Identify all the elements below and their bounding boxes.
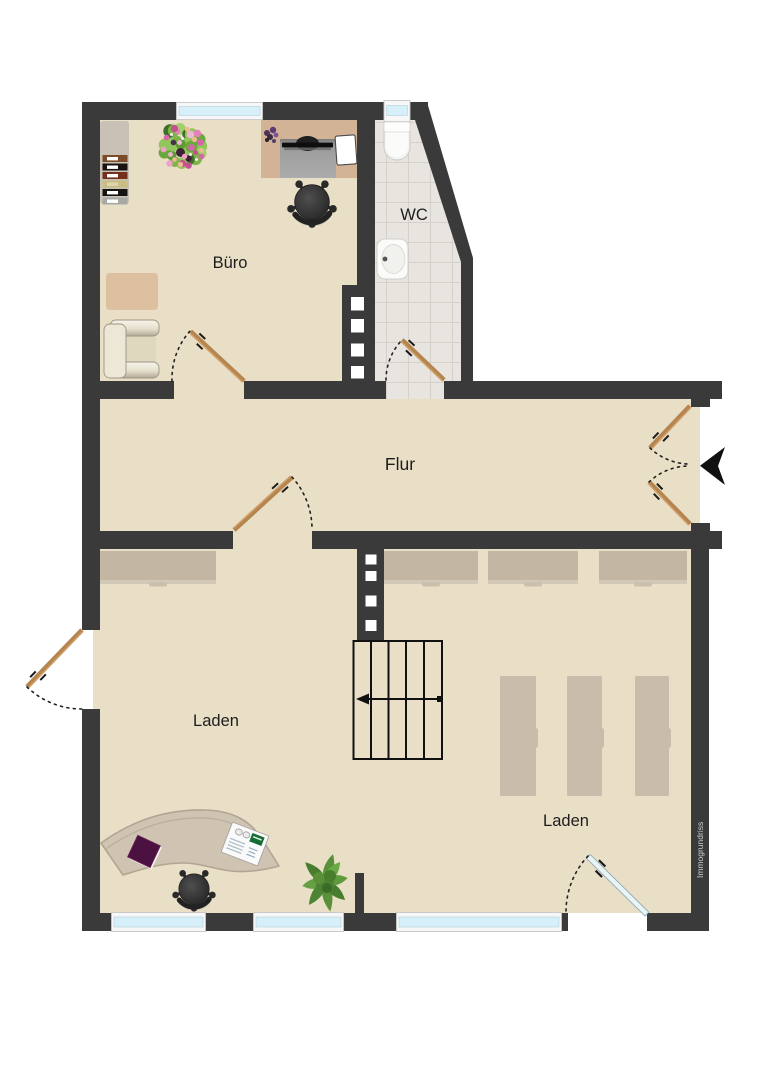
svg-text:Immogrundriss: Immogrundriss bbox=[695, 822, 705, 878]
svg-text:Laden: Laden bbox=[193, 712, 239, 730]
svg-text:Büro: Büro bbox=[213, 254, 248, 272]
svg-text:Flur: Flur bbox=[385, 454, 415, 474]
svg-text:Laden: Laden bbox=[543, 812, 589, 830]
svg-text:WC: WC bbox=[400, 206, 428, 224]
